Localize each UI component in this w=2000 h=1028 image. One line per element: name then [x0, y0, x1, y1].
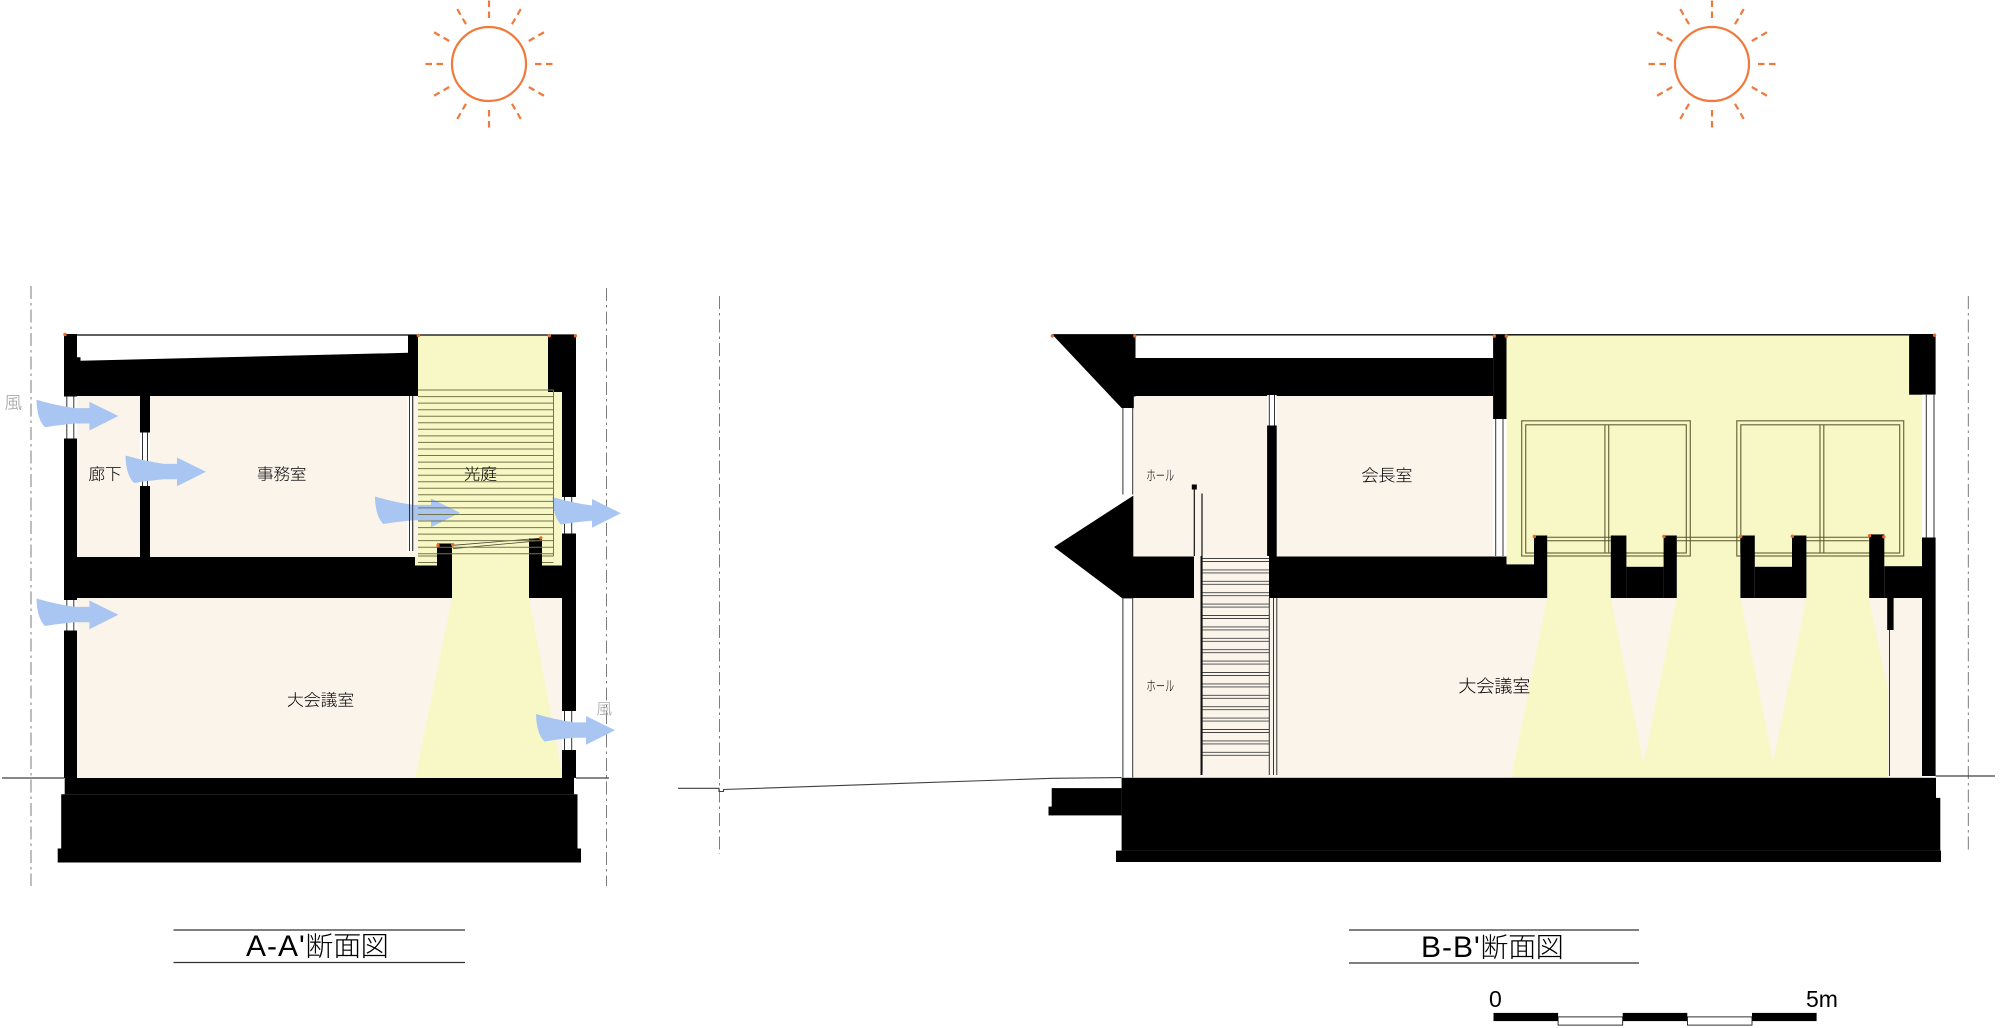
svg-text:B-B': B-B'	[1421, 931, 1481, 964]
svg-text:5m: 5m	[1806, 986, 1838, 1012]
svg-text:0: 0	[1489, 986, 1502, 1012]
svg-text:A-A': A-A'	[246, 930, 306, 963]
